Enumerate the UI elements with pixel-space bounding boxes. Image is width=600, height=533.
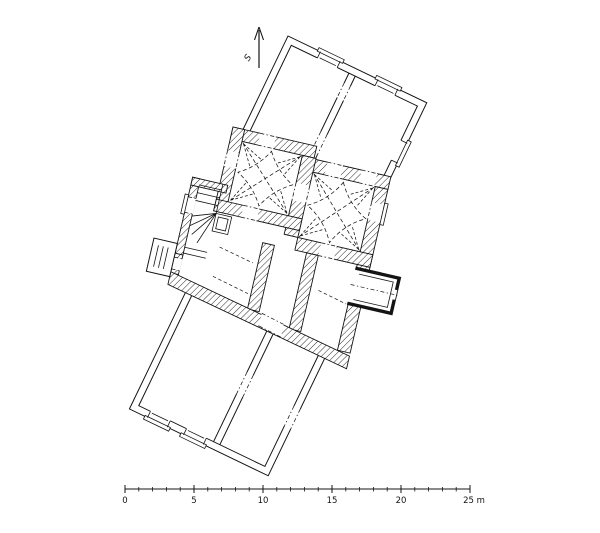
stair-newel: [212, 213, 232, 234]
scale-bar: 0 5 10 15 20 25 m: [122, 485, 485, 506]
scale-tick-label: 20: [396, 496, 407, 506]
scale-tick-label: 0: [122, 496, 127, 506]
north-arrow-icon: S: [243, 27, 264, 68]
floor-plan-drawing: S 0 5 10 15 20 25 m: [0, 0, 600, 533]
scanned-plan-page: S 0 5 10 15 20 25 m: [0, 0, 600, 533]
scale-tick-label: 5: [191, 496, 196, 506]
north-label: S: [243, 53, 255, 64]
scale-tick-label: 25 m: [463, 496, 485, 506]
scale-tick-label: 10: [258, 496, 269, 506]
scale-tick-label: 15: [327, 496, 338, 506]
